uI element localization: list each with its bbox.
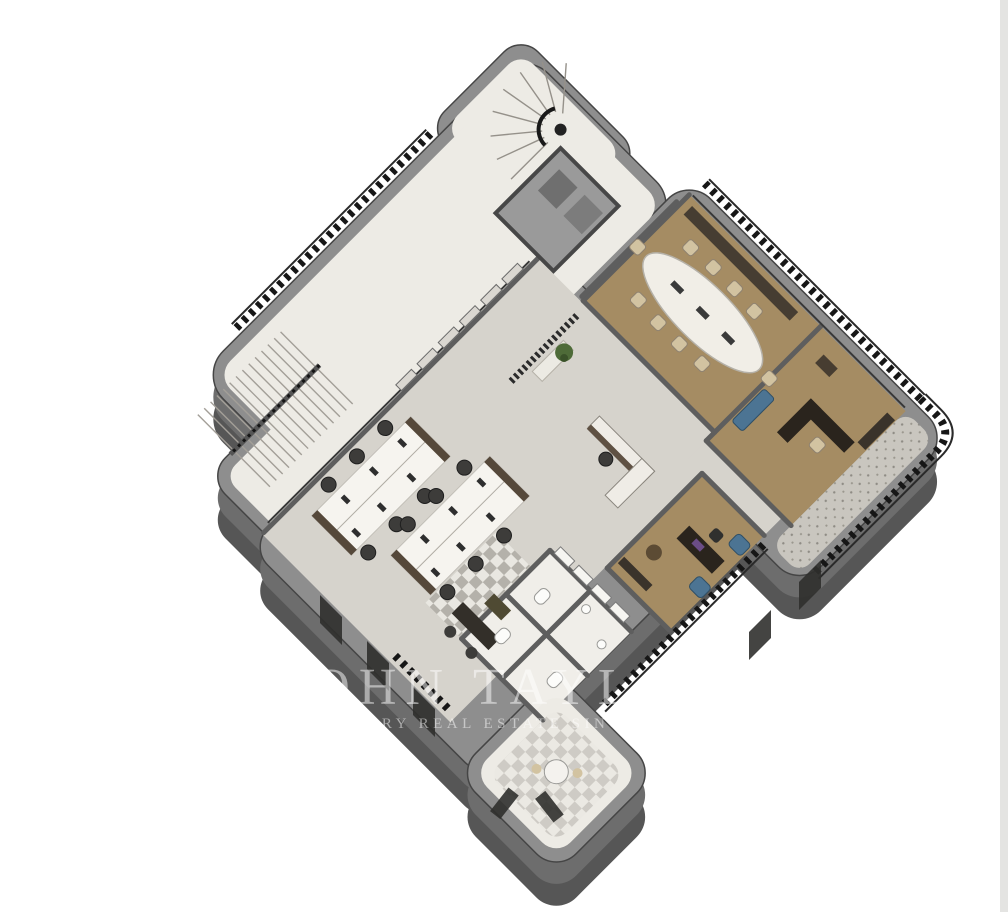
floor-plan-render: JOHN TAYLOR LUXURY REAL ESTATE SINCE 186… [0, 0, 1008, 912]
watermark-brand: JOHN TAYLOR [283, 659, 729, 716]
watermark: JOHN TAYLOR LUXURY REAL ESTATE SINCE 186… [283, 659, 729, 732]
watermark-tagline: LUXURY REAL ESTATE SINCE 1864 [322, 716, 694, 732]
right-edge-strip [1000, 0, 1008, 912]
facade-window [749, 610, 771, 660]
building [97, 12, 1002, 912]
